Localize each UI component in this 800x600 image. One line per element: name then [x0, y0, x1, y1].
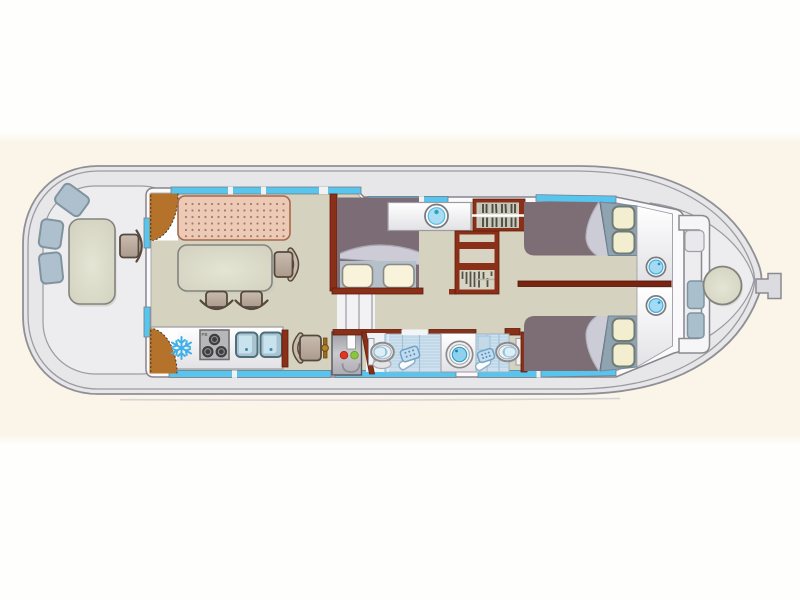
svg-text:PB: PB	[202, 332, 208, 337]
